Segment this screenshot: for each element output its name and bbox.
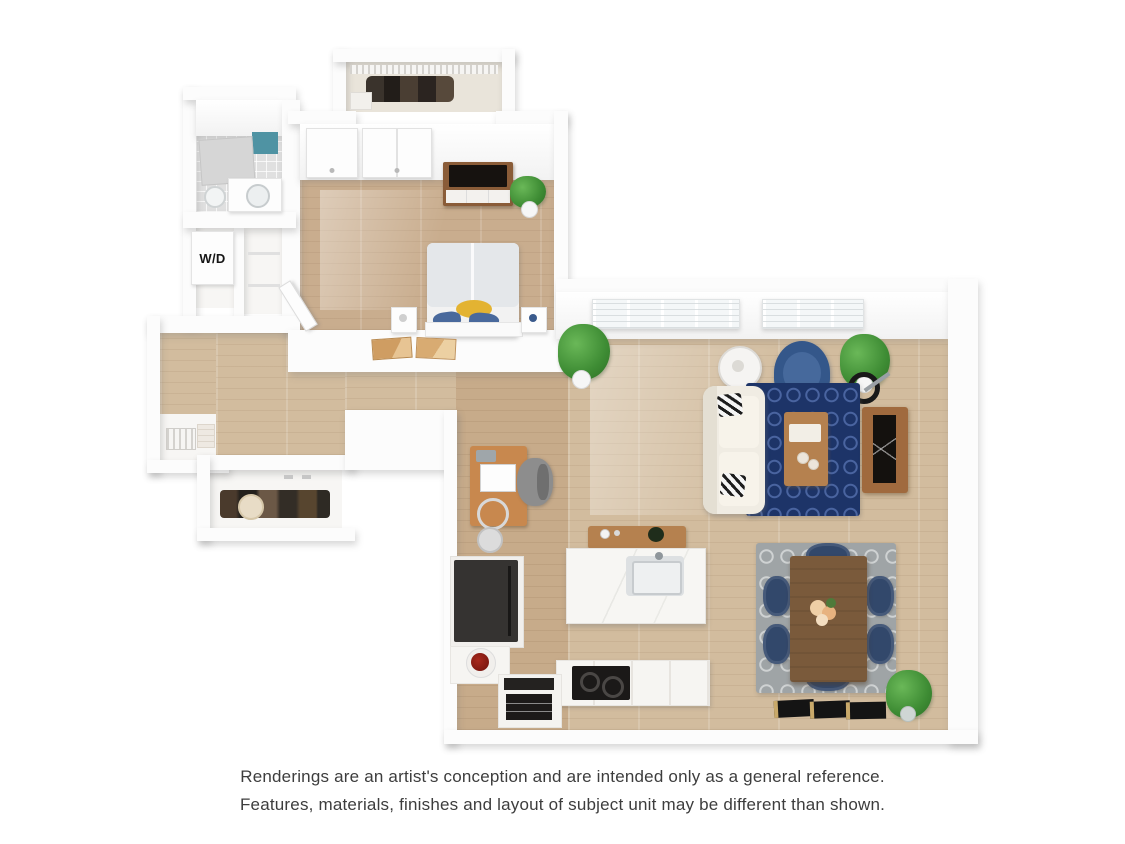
faucet xyxy=(655,552,663,560)
dining-chair xyxy=(763,624,791,664)
wall-shoe-top xyxy=(197,455,355,470)
vase xyxy=(614,530,620,536)
closet-shelf xyxy=(248,252,280,255)
washer-dryer-label: W/D xyxy=(192,232,233,284)
washer-dryer-unit: W/D xyxy=(191,231,234,285)
plant-pot xyxy=(572,370,591,389)
lamp-finial xyxy=(732,360,744,372)
wall-walkin-top xyxy=(333,49,515,62)
burner xyxy=(602,676,624,698)
sideboard-plant xyxy=(648,527,664,542)
closet-door xyxy=(306,128,358,178)
disclaimer-text: Renderings are an artist's conception an… xyxy=(0,763,1125,818)
wall-closet-divider xyxy=(234,226,244,316)
towel-stack xyxy=(197,424,215,448)
desk-gadget xyxy=(476,450,496,462)
burner xyxy=(580,672,600,692)
dining-chair xyxy=(763,576,791,616)
window-right xyxy=(762,299,864,329)
disclaimer-line-1: Renderings are an artist's conception an… xyxy=(0,763,1125,791)
glass-pot xyxy=(900,706,916,722)
shoe-shelf xyxy=(220,490,330,518)
vanity-sink xyxy=(246,184,270,208)
living-tv xyxy=(873,415,896,483)
linen-wire-basket xyxy=(166,428,196,450)
computer-monitor xyxy=(480,464,516,492)
headboard xyxy=(425,322,523,337)
hallway-passage-floor xyxy=(345,370,456,410)
table-lamp xyxy=(399,314,407,322)
flower-centerpiece xyxy=(816,614,828,626)
dining-chair xyxy=(866,624,894,664)
wall-bedroom-top-left xyxy=(288,111,356,124)
shower-tile-accent xyxy=(252,132,278,154)
wall-living-top xyxy=(556,279,948,292)
wall-bath-top xyxy=(183,87,296,100)
window-left xyxy=(592,299,740,329)
office-chair-back xyxy=(537,464,549,500)
wall-bath-left xyxy=(183,87,196,327)
leaning-mat xyxy=(846,702,886,720)
wall-block-center xyxy=(345,410,456,470)
toilet xyxy=(204,186,226,208)
wood-tray xyxy=(371,337,412,361)
wall-bath-laundry xyxy=(183,212,296,228)
wall-bath-north-face xyxy=(196,100,282,136)
wall-right xyxy=(948,279,978,744)
table-lamp-blue xyxy=(529,314,537,322)
door-knob xyxy=(395,168,400,173)
dining-chair xyxy=(866,576,894,616)
wall-shoe-bottom xyxy=(197,528,355,541)
closet-double-door xyxy=(362,128,432,178)
storage-box xyxy=(350,92,372,110)
striped-pillow xyxy=(717,393,743,417)
kitchen-sink xyxy=(632,561,682,595)
door-knob xyxy=(330,168,335,173)
leaning-mat xyxy=(810,700,851,718)
leaning-mat xyxy=(774,699,815,718)
flower-greenery xyxy=(826,598,836,608)
sofa-back xyxy=(703,386,717,514)
plant-pot xyxy=(521,201,538,218)
cup xyxy=(808,459,819,470)
fridge-handle xyxy=(508,566,511,636)
wall-closets-bottom xyxy=(147,316,300,333)
bed-duvet xyxy=(427,243,519,307)
hanging-clothes xyxy=(366,76,454,102)
hat-box xyxy=(238,494,264,520)
closet-shelf xyxy=(248,284,280,287)
disclaimer-line-2: Features, materials, finishes and layout… xyxy=(0,791,1125,819)
bedroom-tv xyxy=(449,165,507,187)
wall-bottom xyxy=(444,730,978,744)
wood-tray xyxy=(415,337,456,360)
coffee-table-tray xyxy=(789,424,821,442)
wall-walkin-right xyxy=(502,49,515,112)
floorplan-canvas: W/D xyxy=(0,0,1125,844)
dresser-drawers xyxy=(446,190,510,203)
closet-hook xyxy=(302,475,311,479)
wall-entry-left xyxy=(147,316,160,473)
oven xyxy=(506,694,552,720)
wire-shelving xyxy=(350,65,498,74)
headphones xyxy=(477,498,509,530)
closet-hook xyxy=(284,475,293,479)
vase xyxy=(600,529,610,539)
side-stool xyxy=(477,527,503,553)
hall-closet-floor xyxy=(244,226,284,314)
red-fruit xyxy=(471,653,489,671)
striped-pillow xyxy=(720,472,747,497)
microwave xyxy=(504,678,554,690)
